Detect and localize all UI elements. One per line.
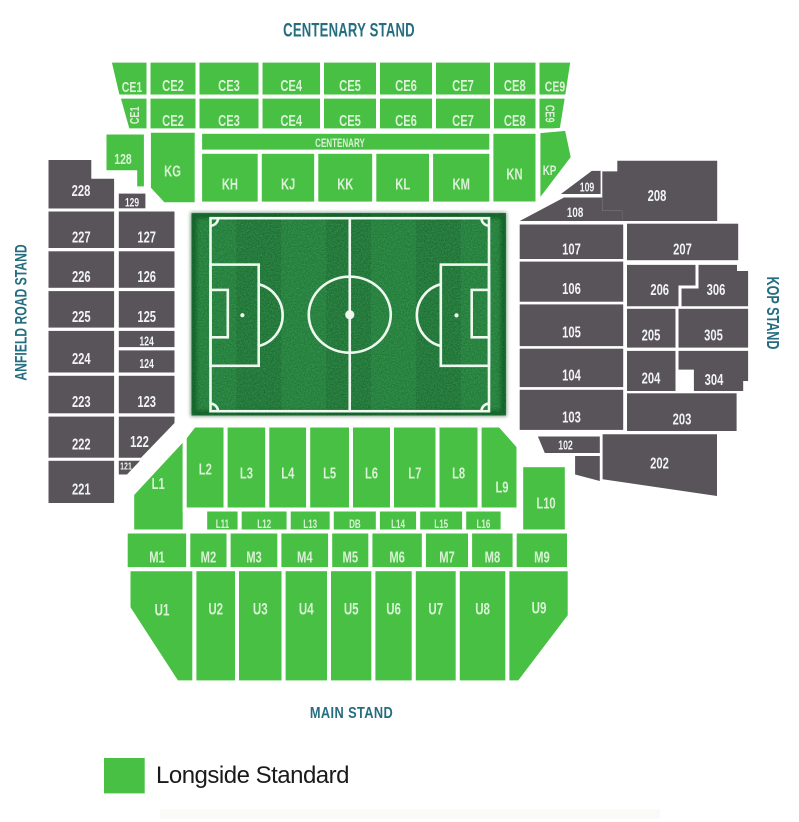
svg-text:U8: U8: [475, 600, 490, 619]
svg-text:U4: U4: [299, 600, 314, 619]
svg-text:L8: L8: [452, 464, 465, 483]
svg-text:203: 203: [673, 410, 692, 429]
svg-text:108: 108: [567, 204, 584, 220]
svg-text:U7: U7: [428, 600, 443, 619]
svg-text:304: 304: [705, 370, 724, 389]
svg-text:107: 107: [562, 239, 581, 258]
svg-text:M3: M3: [246, 547, 262, 566]
svg-text:CE1: CE1: [122, 78, 142, 95]
svg-text:223: 223: [72, 392, 91, 411]
svg-text:CE5: CE5: [339, 76, 361, 95]
svg-text:226: 226: [72, 267, 91, 286]
svg-text:L6: L6: [365, 464, 378, 483]
svg-text:CE7: CE7: [452, 76, 474, 95]
svg-text:CENTENARY STAND: CENTENARY STAND: [283, 20, 415, 41]
svg-text:124: 124: [139, 357, 154, 371]
svg-text:CE4: CE4: [280, 76, 302, 95]
svg-text:CE8: CE8: [504, 76, 526, 95]
svg-text:221: 221: [72, 479, 91, 498]
svg-text:306: 306: [707, 280, 726, 299]
svg-text:ANFIELD ROAD STAND: ANFIELD ROAD STAND: [13, 244, 31, 380]
svg-text:224: 224: [72, 349, 91, 368]
svg-text:KN: KN: [506, 165, 522, 184]
svg-text:L4: L4: [281, 464, 294, 483]
svg-text:U2: U2: [208, 600, 223, 619]
svg-text:KM: KM: [452, 175, 469, 194]
svg-text:M4: M4: [297, 547, 313, 566]
svg-text:KJ: KJ: [281, 175, 295, 194]
svg-text:U5: U5: [344, 600, 359, 619]
svg-text:KK: KK: [337, 175, 353, 194]
svg-text:CE6: CE6: [395, 111, 417, 130]
svg-text:U9: U9: [532, 599, 547, 618]
svg-text:104: 104: [562, 365, 581, 384]
svg-text:227: 227: [72, 227, 91, 246]
svg-text:205: 205: [642, 326, 661, 345]
svg-text:L2: L2: [199, 460, 212, 479]
svg-text:CE4: CE4: [280, 111, 302, 130]
svg-text:M6: M6: [389, 547, 405, 566]
svg-text:L5: L5: [323, 464, 336, 483]
svg-text:CE3: CE3: [218, 76, 240, 95]
svg-text:225: 225: [72, 307, 91, 326]
svg-text:CE9: CE9: [545, 77, 565, 94]
svg-text:128: 128: [114, 150, 132, 167]
svg-text:207: 207: [673, 239, 692, 258]
svg-text:129: 129: [125, 197, 139, 210]
svg-text:CENTENARY: CENTENARY: [315, 138, 365, 151]
svg-text:Longside Standard: Longside Standard: [156, 762, 349, 789]
svg-text:CE3: CE3: [218, 111, 240, 130]
svg-text:109: 109: [580, 181, 595, 195]
svg-text:123: 123: [137, 392, 156, 411]
svg-text:M2: M2: [201, 547, 217, 566]
svg-text:CE9: CE9: [542, 105, 556, 123]
svg-text:CE1: CE1: [129, 106, 143, 124]
svg-text:L9: L9: [495, 478, 508, 497]
svg-text:L10: L10: [536, 494, 556, 513]
svg-text:MAIN STAND: MAIN STAND: [310, 705, 393, 723]
svg-text:KG: KG: [164, 162, 181, 181]
svg-text:U3: U3: [253, 600, 268, 619]
svg-text:CE8: CE8: [504, 111, 526, 130]
svg-text:KH: KH: [222, 175, 238, 194]
svg-text:204: 204: [642, 368, 661, 387]
svg-text:M5: M5: [343, 547, 359, 566]
svg-text:121: 121: [120, 460, 132, 472]
svg-text:M9: M9: [534, 547, 550, 566]
svg-text:L3: L3: [240, 464, 253, 483]
svg-text:106: 106: [562, 279, 581, 298]
svg-text:105: 105: [562, 323, 581, 342]
svg-text:M8: M8: [485, 547, 501, 566]
svg-text:206: 206: [650, 280, 669, 299]
svg-text:KL: KL: [395, 175, 410, 194]
svg-text:M7: M7: [439, 547, 455, 566]
svg-text:124: 124: [139, 335, 154, 349]
svg-text:CE2: CE2: [162, 111, 184, 130]
svg-text:CE2: CE2: [162, 76, 184, 95]
svg-text:222: 222: [72, 435, 91, 454]
svg-text:L1: L1: [152, 474, 165, 493]
svg-text:CE5: CE5: [339, 111, 361, 130]
svg-text:U6: U6: [386, 600, 401, 619]
svg-text:KP: KP: [543, 162, 557, 178]
svg-text:102: 102: [558, 439, 573, 453]
svg-text:305: 305: [704, 326, 723, 345]
svg-text:127: 127: [137, 227, 156, 246]
svg-text:202: 202: [650, 454, 669, 473]
svg-text:126: 126: [137, 267, 156, 286]
svg-text:122: 122: [130, 432, 149, 451]
svg-text:KOP STAND: KOP STAND: [763, 277, 783, 350]
svg-text:U1: U1: [155, 601, 170, 620]
svg-text:M1: M1: [149, 547, 165, 566]
svg-text:CE6: CE6: [395, 76, 417, 95]
svg-text:CE7: CE7: [452, 111, 474, 130]
svg-text:L7: L7: [408, 464, 421, 483]
svg-text:228: 228: [72, 181, 91, 200]
svg-text:103: 103: [562, 407, 581, 426]
svg-text:125: 125: [137, 307, 156, 326]
svg-text:208: 208: [648, 186, 667, 205]
